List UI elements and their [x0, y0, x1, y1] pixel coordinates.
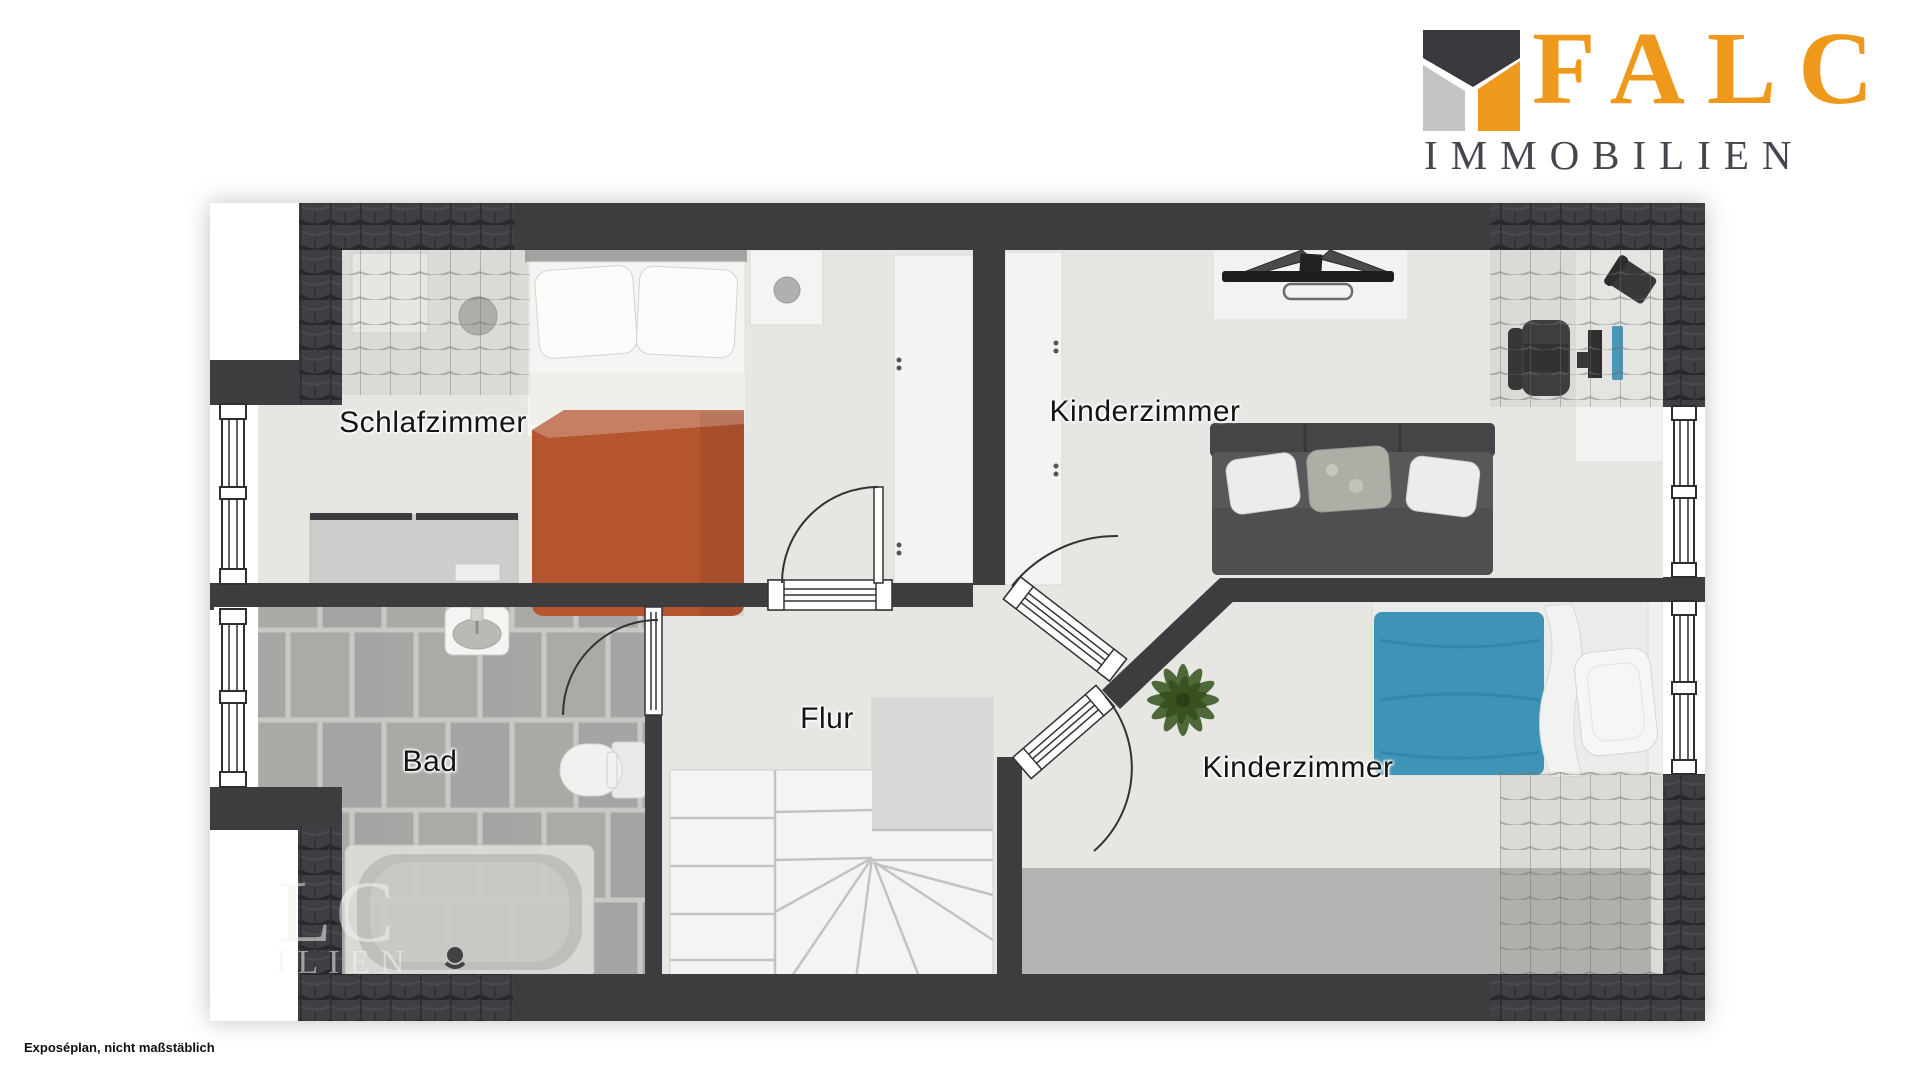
sofa-bed-icon [1210, 423, 1495, 575]
sink-icon [445, 607, 509, 655]
stair-landing [872, 698, 993, 830]
dresser-icon [310, 513, 518, 583]
wardrobe-icon [894, 255, 973, 583]
falc-logo-mark-icon [1423, 30, 1522, 132]
window-icon [210, 404, 258, 584]
falc-logo: FALC IMMOBILIEN [1410, 14, 1910, 174]
desk-monitor-icon [1213, 250, 1408, 320]
window-icon [210, 609, 258, 787]
room-label-kinderzimmer-top: Kinderzimmer [1049, 395, 1240, 429]
bathtub-icon [345, 845, 594, 979]
double-bed-icon [525, 248, 747, 616]
lamp-icon [774, 277, 800, 303]
disclaimer-note: Exposéplan, nicht maßstäblich [24, 1040, 215, 1055]
window-icon [1663, 406, 1705, 577]
toilet-icon [560, 742, 645, 798]
logo-subtitle-text: IMMOBILIEN [1424, 131, 1805, 179]
floorplan-page: Schlafzimmer Kinderzimmer Bad Flur Kinde… [0, 0, 1920, 1080]
room-label-kinderzimmer-bottom: Kinderzimmer [1202, 751, 1393, 785]
room-label-schlafzimmer: Schlafzimmer [339, 406, 527, 440]
logo-brand-text: FALC [1532, 12, 1895, 126]
room-label-bad: Bad [403, 745, 458, 779]
window-icon [1663, 601, 1705, 774]
single-bed-icon [1372, 600, 1663, 778]
room-label-flur: Flur [800, 702, 854, 736]
